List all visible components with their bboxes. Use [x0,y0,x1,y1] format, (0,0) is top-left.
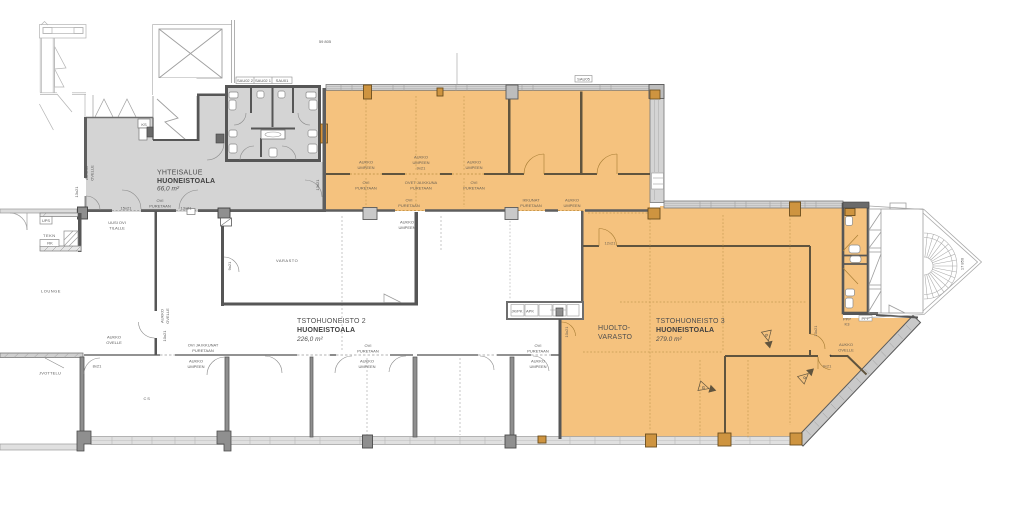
svg-text:UMPEEN: UMPEEN [529,364,546,369]
svg-text:226,0 m²: 226,0 m² [296,336,323,343]
svg-text:TEKN: TEKN [43,233,56,238]
svg-text:SAU02 2: SAU02 2 [237,78,254,83]
svg-text:UMPEEN: UMPEEN [412,160,429,165]
svg-text:AUKKO: AUKKO [189,359,203,364]
svg-text:PURETAAN: PURETAAN [355,186,377,191]
svg-text:AUKKO: AUKKO [160,309,165,323]
svg-text:59 805: 59 805 [319,39,332,44]
svg-text:PURETAAN: PURETAAN [149,204,171,209]
svg-text:9x21: 9x21 [823,364,832,369]
svg-text:APK: APK [526,309,534,314]
svg-text:SAU02 1: SAU02 1 [255,78,272,83]
svg-text:OVELLE: OVELLE [838,348,854,353]
svg-text:UMPEEN: UMPEEN [187,364,204,369]
svg-text:PURETAAN: PURETAAN [463,186,485,191]
svg-text:IKKUNAT: IKKUNAT [522,198,540,203]
svg-text:AUKKO: AUKKO [359,160,373,165]
svg-text:VARASTO: VARASTO [276,258,298,263]
svg-text:PURETAAN: PURETAAN [398,203,420,208]
svg-text:10x21: 10x21 [162,330,167,342]
svg-text:9x21: 9x21 [227,261,232,270]
svg-text:9x21: 9x21 [417,166,426,171]
svg-text:KS: KS [141,122,147,127]
svg-text:SAU05: SAU05 [577,77,590,82]
svg-text:10x21: 10x21 [813,325,818,337]
svg-text:OVET JA IKKUNA: OVET JA IKKUNA [405,180,438,185]
svg-text:AUKKO: AUKKO [360,359,374,364]
svg-text:PURETAAN: PURETAAN [527,349,549,354]
svg-text:UMPEEN: UMPEEN [465,165,482,170]
svg-text:OVI: OVI [406,198,413,203]
svg-text:SAU01: SAU01 [276,78,289,83]
svg-text:AUKKO: AUKKO [414,155,428,160]
svg-text:UMPEEN: UMPEEN [563,203,580,208]
svg-text:8x21: 8x21 [93,364,102,369]
svg-text:LOUNGE: LOUNGE [41,289,61,294]
svg-text:12x21: 12x21 [605,241,617,246]
svg-text:OVELLE: OVELLE [165,308,170,324]
svg-text:PURETAAN: PURETAAN [357,349,379,354]
svg-text:AUKKO: AUKKO [467,160,481,165]
svg-text:15x21: 15x21 [121,206,133,211]
svg-text:AUKKO: AUKKO [400,220,414,225]
svg-text:HUOLTO-: HUOLTO- [598,325,631,332]
svg-text:K3: K3 [845,322,851,327]
svg-text:UPS: UPS [42,218,51,223]
svg-text:13x21: 13x21 [74,186,79,198]
svg-text:PURETAAN: PURETAAN [520,203,542,208]
svg-text:AUKKO: AUKKO [531,359,545,364]
svg-text:VARASTO: VARASTO [598,334,633,341]
svg-text:AUKKO: AUKKO [107,335,121,340]
svg-text:OVELLE: OVELLE [106,340,122,345]
svg-text:279.0 m²: 279.0 m² [655,336,682,343]
svg-text:TSTOHUONEISTO 3: TSTOHUONEISTO 3 [656,318,725,325]
svg-text:UUSI OVI: UUSI OVI [108,220,126,225]
svg-text:RK: RK [47,241,53,246]
svg-text:JK/PK: JK/PK [511,309,522,314]
svg-text:66,0 m²: 66,0 m² [157,186,180,193]
svg-text:OVI: OVI [365,343,372,348]
svg-text:OVI: OVI [471,180,478,185]
svg-text:HUONEISTOALA: HUONEISTOALA [157,178,215,185]
svg-text:UMPEEN: UMPEEN [398,225,415,230]
svg-text:HUONEISTOALA: HUONEISTOALA [297,327,355,334]
svg-text:AUKKO: AUKKO [839,342,853,347]
svg-text:10x21: 10x21 [564,326,569,338]
svg-text:YHTEISALUE: YHTEISALUE [157,170,203,177]
svg-text:AUKKO: AUKKO [565,198,579,203]
svg-text:13x21: 13x21 [315,179,320,191]
svg-text:OVI: OVI [363,180,370,185]
svg-text:OVELLE: OVELLE [90,165,95,181]
svg-text:PURETAAN: PURETAAN [410,186,432,191]
svg-text:OVI JA IKKUNAT: OVI JA IKKUNAT [188,343,219,348]
svg-text:OVI: OVI [535,343,542,348]
svg-text:OVI: OVI [157,198,164,203]
svg-text:PURETAAN: PURETAAN [192,348,214,353]
svg-text:TSTOHUONEISTO 2: TSTOHUONEISTO 2 [297,318,366,325]
svg-text:JVOTTELU: JVOTTELU [39,371,61,376]
svg-text:CS: CS [144,396,151,401]
svg-text:TILALLE: TILALLE [109,226,125,231]
svg-text:UMPEEN: UMPEEN [357,165,374,170]
svg-text:17 850: 17 850 [960,257,965,270]
svg-text:13x21: 13x21 [181,206,193,211]
svg-text:UMPEEN: UMPEEN [358,364,375,369]
svg-text:HUONEISTOALA: HUONEISTOALA [656,327,714,334]
svg-text:AUKKO: AUKKO [84,166,89,180]
svg-text:PPP: PPP [861,316,869,321]
